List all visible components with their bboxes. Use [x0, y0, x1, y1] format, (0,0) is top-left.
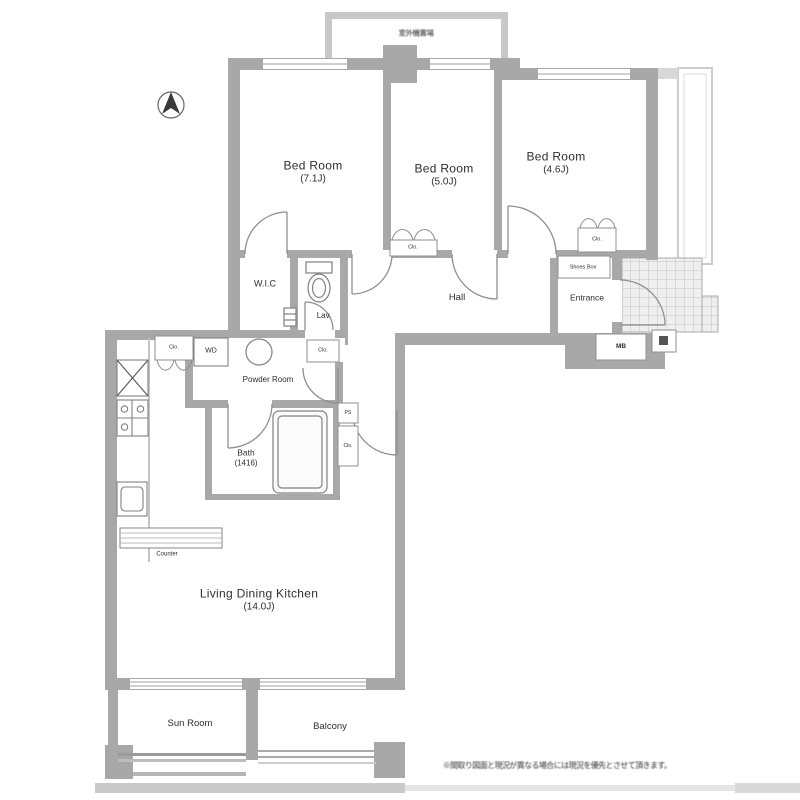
- room-label-bedroom3: Bed Room (4.6J): [526, 149, 585, 177]
- bathtub-icon: [273, 411, 327, 493]
- vanity-sink-icon: [246, 339, 272, 365]
- bedroom2-closet-label: Clo.: [408, 245, 418, 252]
- bedroom3-name: Bed Room: [526, 149, 585, 164]
- bedroom2-name: Bed Room: [414, 161, 473, 176]
- pipe-space-label: PS: [345, 410, 352, 416]
- room-label-sunroom: Sun Room: [168, 718, 213, 730]
- bathside-closet-label: Clo.: [344, 443, 353, 449]
- ldk-name: Living Dining Kitchen: [199, 586, 319, 601]
- floor-plan: 室外機置場 Bed Room (7.1J) Bed Room (5.0J) Be…: [0, 0, 800, 800]
- north-compass-icon: [158, 92, 184, 118]
- stove-icon: [117, 400, 148, 436]
- counter-island: [120, 528, 222, 548]
- room-label-powder: Powder Room: [233, 375, 303, 385]
- bottom-crop-band: [95, 783, 800, 793]
- counter-label: Counter: [156, 551, 177, 559]
- bath-size: (1416): [234, 458, 257, 468]
- bedroom1-name: Bed Room: [283, 158, 342, 173]
- disclaimer-text: ※間取り図面と現況が異なる場合には現況を優先とさせて頂きます。: [443, 761, 672, 771]
- room-label-bedroom2: Bed Room (5.0J): [414, 161, 473, 189]
- bedroom3-closet-label: Clo.: [592, 237, 602, 244]
- refrigerator-icon: [117, 360, 148, 396]
- meter-box-label: MB: [616, 343, 626, 351]
- floorplan-drawing: [0, 0, 800, 800]
- washer-dryer-label: WD: [205, 348, 217, 357]
- bedroom1-size: (7.1J): [283, 173, 342, 186]
- room-label-balcony: Balcony: [313, 721, 347, 733]
- room-label-bath: Bath (1416): [234, 448, 257, 469]
- room-label-ldk: Living Dining Kitchen (14.0J): [199, 586, 319, 614]
- kitchen-sink-icon: [117, 482, 147, 516]
- room-label-bedroom1: Bed Room (7.1J): [283, 158, 342, 186]
- shoes-box-label: Shoes Box: [570, 265, 597, 272]
- exterior-walkway: [656, 68, 712, 264]
- corridor-closet-label: Clo.: [318, 348, 328, 355]
- bath-name: Bath: [234, 448, 257, 459]
- room-label-lavatory: Lav.: [317, 311, 332, 321]
- ldk-size: (14.0J): [199, 601, 319, 614]
- room-label-wic: W.I.C: [254, 278, 276, 289]
- kitchen-closet-label: Clo.: [169, 345, 179, 352]
- bedroom2-size: (5.0J): [414, 176, 473, 189]
- bedroom3-size: (4.6J): [526, 164, 585, 177]
- entrance-porch-tiles: [622, 258, 718, 332]
- room-label-entrance: Entrance: [570, 293, 604, 304]
- room-label-hall: Hall: [449, 292, 465, 304]
- outdoor-unit-label: 室外機置場: [399, 28, 434, 37]
